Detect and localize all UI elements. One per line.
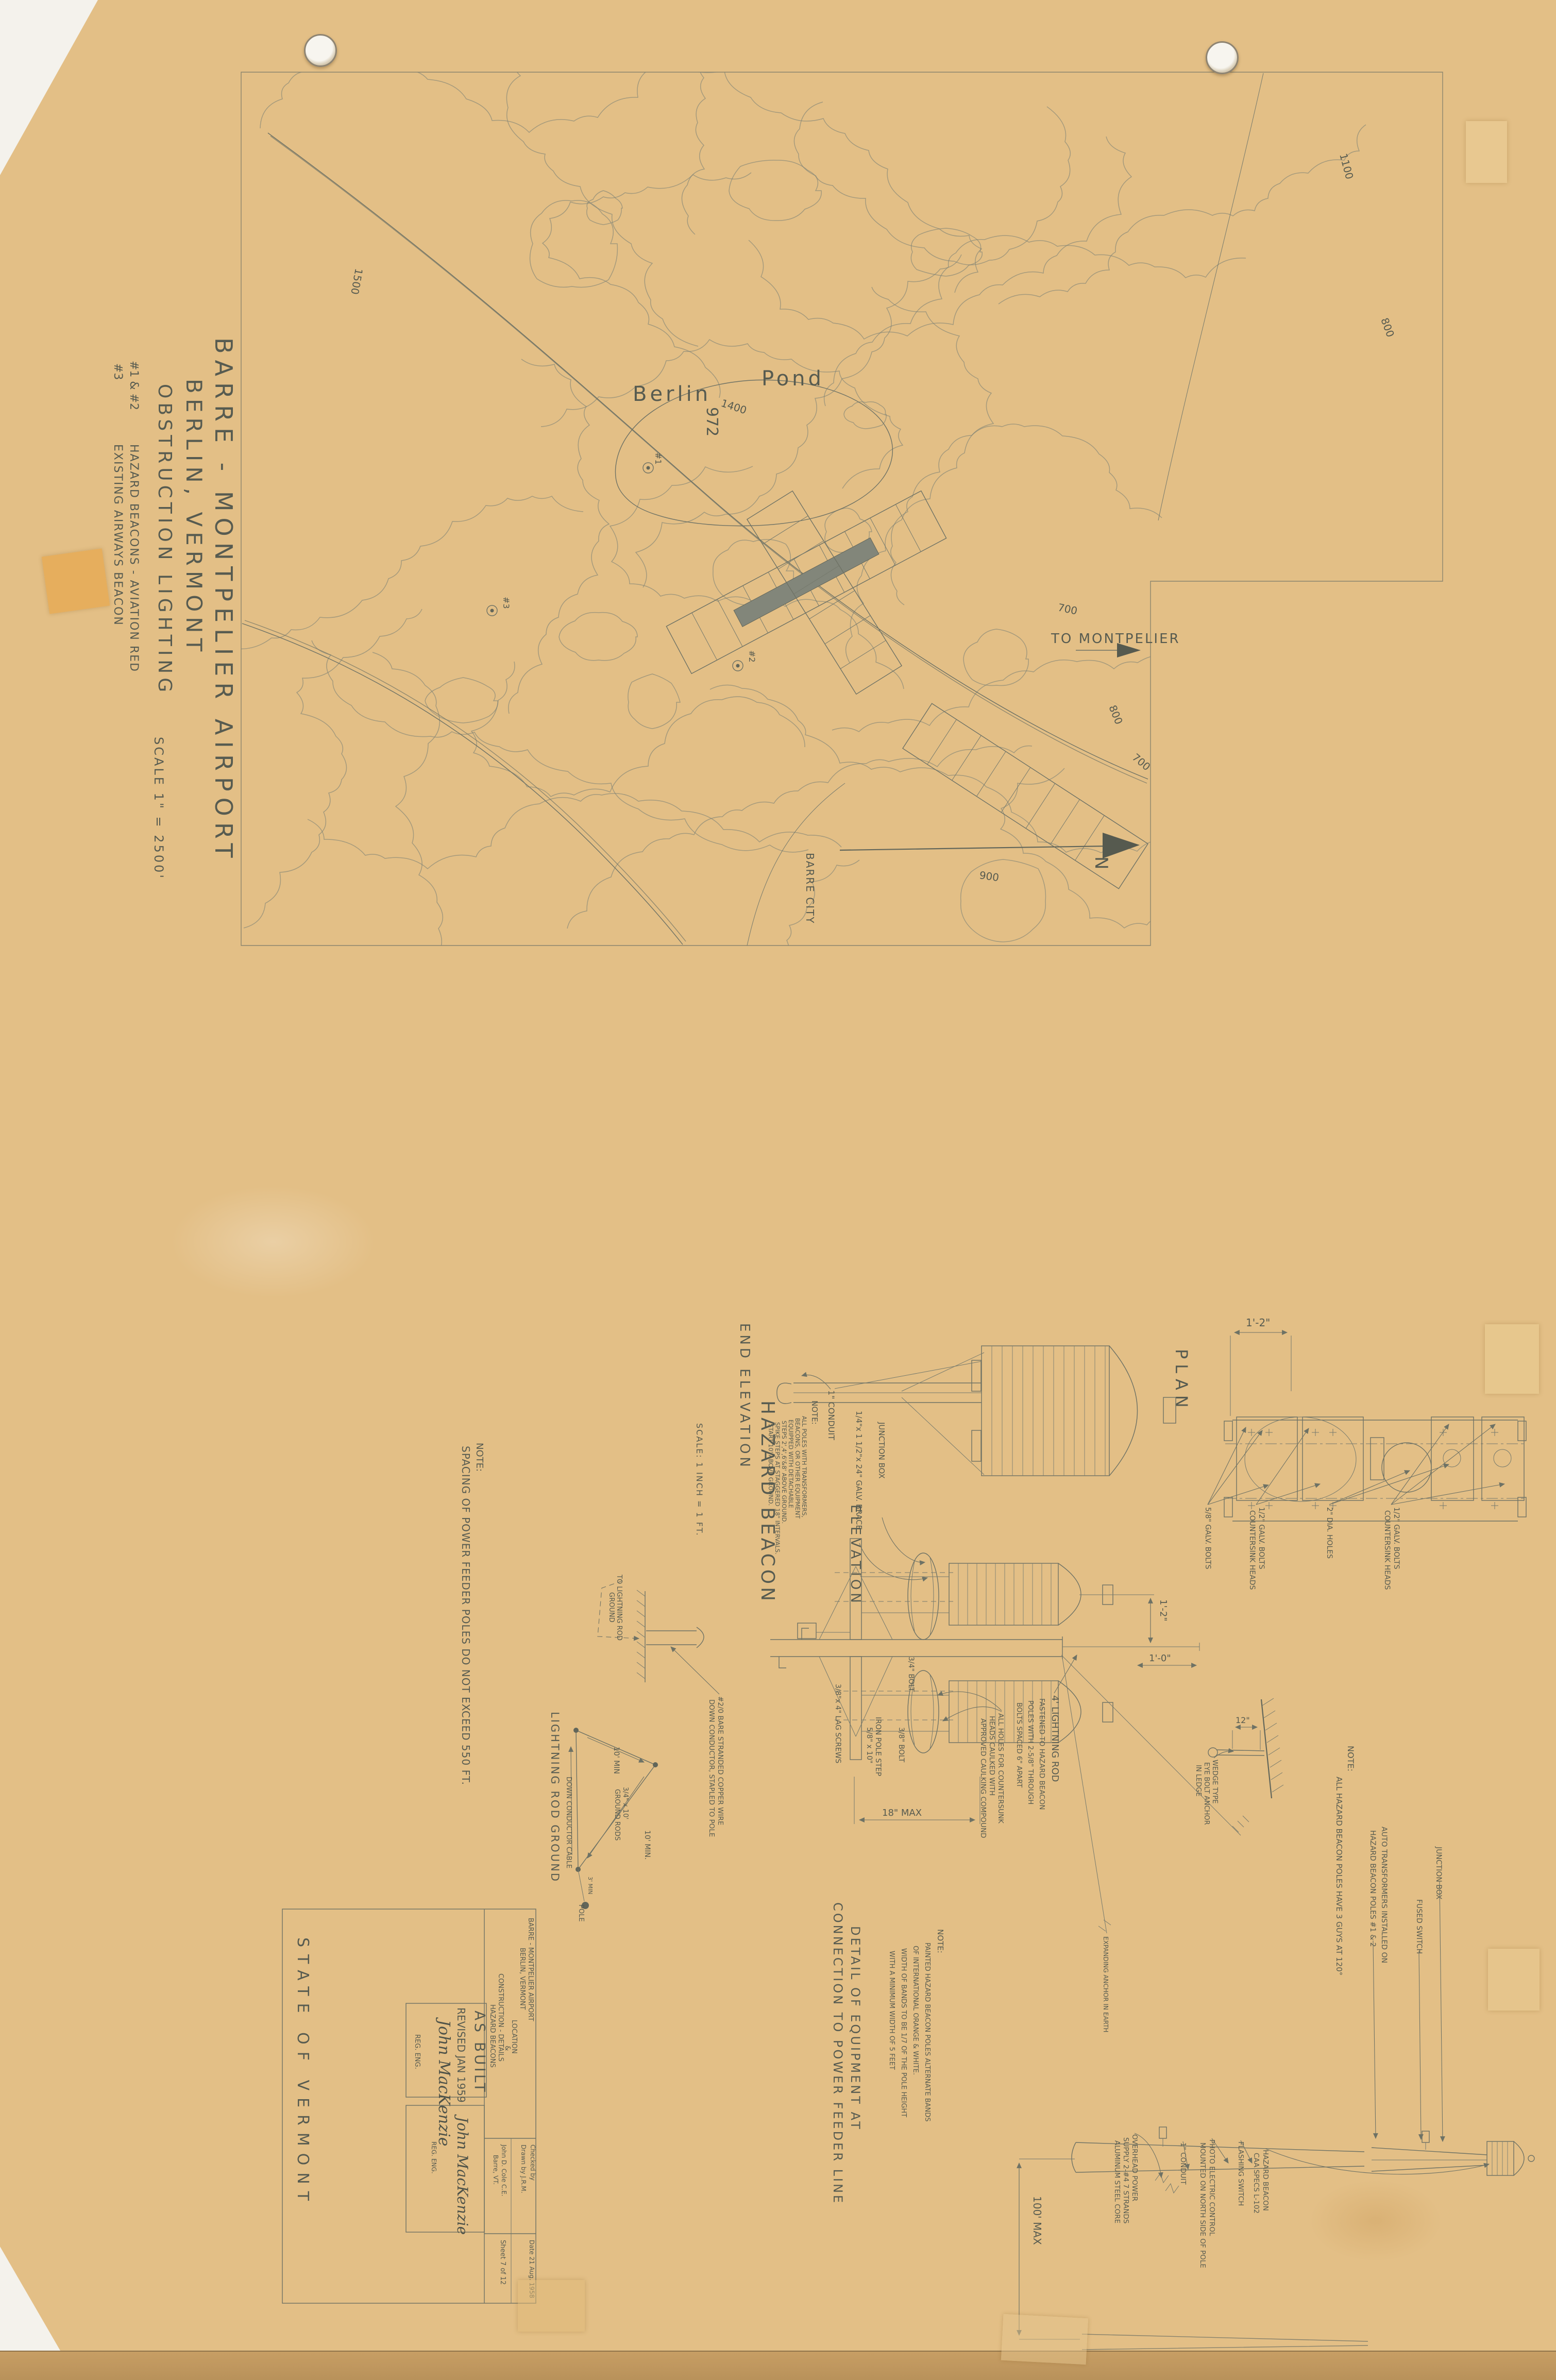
stamp-reg-eng: REG. ENG. <box>413 2034 421 2069</box>
note-line: SPACING OF POWER FEEDER POLES DO NOT EXC… <box>460 1446 472 1785</box>
contour-label: 800 <box>1106 703 1125 726</box>
sheet-bottom-edge <box>0 2351 1556 2380</box>
plan-callout-4: 1/2" GALV. BOLTS <box>1392 1507 1400 1569</box>
note-line: STEPS 2',4',6'&8' ABOVE GROUND. <box>781 1421 788 1524</box>
legend-symbol-3: #3 <box>111 363 124 380</box>
callout-galv-brace: 1/4"x 1 1/2"x 24" GALV. BRACE <box>854 1411 864 1530</box>
as-built-stamp: AS BUILT REVISED JAN 1959 John MacKenzie… <box>406 2003 488 2147</box>
legend-airways-beacon: EXISTING AIRWAYS BEACON <box>111 444 124 626</box>
tape-right-low <box>1488 1949 1540 2011</box>
wedge-anchor-detail <box>1208 1698 1283 1798</box>
power-dim-100max: 100' MAX <box>1031 2196 1043 2245</box>
runway-strips <box>666 491 1148 889</box>
tb-state: STATE OF VERMONT <box>294 1937 312 2208</box>
callout-junction-box-2: JUNCTION BOX <box>1434 1846 1443 1900</box>
contour-label: 800 <box>1378 316 1397 339</box>
lr-ground-rods-size: 3/4" x 10' <box>621 1787 629 1819</box>
punch-hole-left <box>304 34 337 67</box>
contour-line <box>543 173 751 398</box>
beacon-ribs <box>992 1346 1105 1476</box>
contour-line <box>506 0 698 346</box>
note-steps: NOTE: ALL POLES WITH TRANSFORMERS, BEACO… <box>767 1400 819 1555</box>
callout-lag-screws: 3/8"x 4" LAG SCREWS <box>834 1684 842 1763</box>
lr-cable: DOWN CONDUCTOR CABLE <box>565 1777 572 1868</box>
tape-bottom-left <box>518 2280 585 2332</box>
plan-callout-1: 5/8" GALV. BOLTS <box>1204 1507 1212 1569</box>
callout-lightning-rod-3: POLES WITH 2-5/8" THROUGH <box>1026 1700 1035 1804</box>
callout-to-ground-2: GROUND <box>607 1592 615 1623</box>
stamp-signature: John MacKenzie <box>435 2017 453 2147</box>
lr-ground-rods: GROUND RODS <box>613 1789 621 1841</box>
end-elevation-drawing <box>777 1346 1176 1476</box>
legend-hazard-beacons: HAZARD BEACONS - AVIATION RED <box>127 444 140 672</box>
contour-line <box>373 652 482 1097</box>
crease-highlight <box>170 1185 376 1298</box>
callout-to-ground-1: TO LIGHTNING ROD <box>615 1574 623 1641</box>
contour-line <box>776 860 953 1150</box>
contour-line <box>587 191 622 225</box>
tb-construction: CONSTRUCTION - DETAILS <box>497 1973 504 2062</box>
note-line: START 10' ABOVE GROUND. <box>767 1424 774 1506</box>
dim-1-0: 1'-0" <box>1149 1653 1171 1664</box>
contour-line <box>961 859 1046 942</box>
callout-down-conductor-2: DOWN CONDUCTOR, STAPLED TO POLE <box>707 1699 716 1837</box>
tb-city: BERLIN, VERMONT <box>518 1948 526 2010</box>
callout-lightning-rod-4: BOLTS SPACED 6" APART <box>1015 1702 1023 1788</box>
callout-flashing-switch: FLASHING SWITCH <box>1237 2141 1245 2206</box>
dim-18max: 18" MAX <box>882 1808 922 1818</box>
callout-junction-box: JUNCTION BOX <box>877 1422 886 1479</box>
plan-leaders <box>1208 1424 1504 1505</box>
tb-hazard-beacons: HAZARD BEACONS <box>488 2004 496 2068</box>
contour-label: 1500 <box>348 267 365 295</box>
tape-top-right <box>1466 121 1507 183</box>
lr-pole: POLE <box>577 1904 585 1922</box>
note-line: SPIKE STEPS AT STAGGERED 18" INTERVALS. <box>774 1422 781 1555</box>
callout-lightning-rod-2: FASTENED TO HAZARD BEACON <box>1038 1698 1046 1810</box>
contour-group <box>149 0 1366 1150</box>
power-feeder-detail <box>1019 2127 1534 2350</box>
map-panel: Berlin Pond 972 TO MONTPELIER BARRE CITY… <box>149 0 1443 1150</box>
contour-line <box>832 589 1340 732</box>
callout-conduit-2: 1" CONDUIT <box>1179 2142 1187 2185</box>
note-line: EQUIPPED WITH DETACHABLE <box>787 1420 794 1508</box>
note-line: AUTO TRANSFORMERS INSTALLED ON <box>1380 1827 1388 1963</box>
callout-photo-2: MOUNTED ON NORTH SIDE OF POLE <box>1198 2142 1207 2268</box>
dim-1-2: 1'-2" <box>1158 1599 1169 1622</box>
contour-label: 700 <box>1130 751 1153 773</box>
note-head: NOTE: <box>474 1443 485 1472</box>
signature-2-reg: REG. ENG. <box>430 2141 437 2174</box>
plan-callout-3: 2" DIA. HOLES <box>1325 1507 1333 1559</box>
note-transformers: AUTO TRANSFORMERS INSTALLED ON HAZARD BE… <box>1368 1827 1388 2138</box>
callout-bolt-38: 3/8" BOLT <box>897 1727 905 1763</box>
callout-lightning-rod: 4' LIGHTNING ROD <box>1050 1695 1060 1782</box>
punch-hole-right <box>1206 41 1239 74</box>
callout-photo-1: PHOTO ELECTRIC CONTROL <box>1208 2139 1216 2236</box>
contour-line <box>794 102 1070 265</box>
map-roads <box>242 73 1263 946</box>
callout-supply-1: OVERHEAD POWER <box>1130 2134 1139 2201</box>
note-line: ALL POLES WITH TRANSFORMERS, <box>801 1416 808 1517</box>
callout-iron-step-size: 5/8" x 10" <box>865 1727 873 1763</box>
legend-symbol-12: #1 & #2 <box>127 361 140 410</box>
contour-label: 900 <box>978 869 1000 884</box>
contour-line <box>749 137 1131 339</box>
map-label-to-montpelier: TO MONTPELIER <box>1051 631 1180 647</box>
callout-iron-step: IRON POLE STEP <box>874 1717 882 1776</box>
note-paint: NOTE: PAINTED HAZARD BEACON POLES ALTERN… <box>888 1929 945 2122</box>
signature-2: John MacKenzie <box>454 2114 471 2235</box>
contour-line <box>582 56 982 293</box>
tb-firm-city: Barre, VT. <box>492 2155 499 2185</box>
callout-supply-2: SUPPLY 2-#4 7 STRANDS <box>1122 2137 1130 2223</box>
callout-caulk-3: APPROVED CAULKING COMPOUND <box>979 1718 987 1838</box>
wedge-dim: 12" <box>1236 1715 1250 1725</box>
stain <box>1309 2180 1443 2262</box>
note-line: WITH A MINIMUM WIDTH OF 5 FEET <box>888 1951 895 2070</box>
contour-line <box>636 255 961 587</box>
callout-bolt-34: 3/4" BOLT <box>907 1657 915 1692</box>
note-line: PAINTED HAZARD BEACON POLES ALTERNATE BA… <box>923 1943 931 2122</box>
detail-title-lr-ground: LIGHTNING ROD GROUND <box>549 1712 561 1883</box>
note-head: NOTE: <box>1346 1746 1356 1771</box>
tb-drawn-by: Drawn by J.R.M. <box>520 2145 527 2193</box>
callout-caa-specs: CAA SPECS L-102 <box>1252 2153 1260 2214</box>
map-label-barre-city: BARRE CITY <box>804 853 816 924</box>
plan-drawing <box>1224 1332 1526 1521</box>
tape-bottom-middle <box>1001 2314 1088 2365</box>
contour-line <box>308 794 841 869</box>
map-label-pond: Pond <box>762 367 824 391</box>
stamp-as-built: AS BUILT <box>471 2011 488 2095</box>
contour-line <box>244 609 422 928</box>
contour-line <box>471 662 805 797</box>
lr-dim-3min: 3' MIN <box>587 1877 594 1894</box>
contour-line <box>312 640 808 852</box>
beacon-number: #1 <box>653 452 663 465</box>
map-scale: SCALE 1" = 2500' <box>151 737 166 880</box>
map-label-north: N <box>1091 856 1111 869</box>
callout-caulk-2: HEADS CAULKED WITH <box>988 1716 996 1796</box>
scanned-drawing-page: Berlin Pond 972 TO MONTPELIER BARRE CITY… <box>0 0 1556 2380</box>
tape-left <box>42 548 110 614</box>
callout-conduit: 1" CONDUIT <box>826 1390 836 1440</box>
contour-line <box>541 340 903 488</box>
stamp-revised: REVISED JAN 1959 <box>455 2007 467 2103</box>
tb-sheet-number: Sheet 7 of 12 <box>499 2240 506 2285</box>
map-label-berlin: Berlin <box>633 382 711 406</box>
contour-line <box>846 287 993 663</box>
callout-supply-3: ALUMINUM STEEL CORE <box>1113 2140 1121 2223</box>
contour-line <box>963 629 1028 686</box>
contour-label: 1100 <box>1337 152 1356 180</box>
note-line: OF INTERNATIONAL ORANGE & WHITE. <box>911 1946 919 2075</box>
view-title-end-elevation: END ELEVATION <box>737 1323 752 1470</box>
sheet-title-city: BERLIN, VERMONT <box>181 379 207 656</box>
contour-line <box>891 424 1162 605</box>
tb-airport: BARRE - MONTPELIER AIRPORT <box>527 1918 534 2021</box>
wedge-label-3: IN LEDGE <box>1194 1765 1202 1796</box>
wedge-label-1: WEDGE TYPE <box>1211 1760 1219 1803</box>
callout-anchor-earth: EXPANDING ANCHOR IN EARTH <box>1102 1936 1109 2032</box>
contour-line <box>559 613 637 661</box>
callout-fused-switch: FUSED SWITCH <box>1415 1899 1423 1954</box>
detail-title-power-1: DETAIL OF EQUIPMENT AT <box>848 1926 862 2131</box>
contour-line <box>824 235 1246 406</box>
detail-title-power-2: CONNECTION TO POWER FEEDER LINE <box>831 1902 845 2205</box>
wedge-label-2: EYE BOLT ANCHOR <box>1203 1762 1210 1825</box>
note-line: ALL HAZARD BEACON POLES HAVE 3 GUYS AT 1… <box>1334 1777 1344 1976</box>
plan-callout-2: 1/2" GALV. BOLTS <box>1257 1507 1265 1569</box>
side-titles: BARRE - MONTPELIER AIRPORT BERLIN, VERMO… <box>111 337 238 880</box>
note-guys: NOTE: ALL HAZARD BEACON POLES HAVE 3 GUY… <box>1334 1746 1356 1976</box>
contour-line <box>999 125 1366 304</box>
tb-checked-by: Checked by <box>529 2145 536 2181</box>
plan-callout-4b: COUNTERSINK HEADS <box>1383 1510 1391 1590</box>
contour-line <box>567 746 1032 929</box>
bolt-marks <box>1248 1429 1498 1509</box>
tape-right-mid <box>1485 1324 1539 1394</box>
note-line: HAZARD BEACON POLES #1 & 2 <box>1368 1830 1377 1947</box>
lr-dim-10min: 10' MIN <box>612 1747 620 1774</box>
sheet-title-subject: OBSTRUCTION LIGHTING <box>154 384 175 696</box>
view-scale: SCALE: 1 INCH = 1 FT. <box>695 1423 704 1537</box>
note-line: BEACONS, OR OTHER EQUIPMENT <box>794 1418 801 1519</box>
note-line: WIDTH OF BANDS TO BE 1/7 OF THE POLE HEI… <box>900 1948 907 2117</box>
beacon-number: #2 <box>747 650 757 663</box>
plan-dim: 1'-2" <box>1246 1316 1270 1329</box>
contour-line <box>1001 768 1348 929</box>
lr-dim-10min-2: 10' MIN. <box>643 1830 651 1860</box>
north-arrow <box>840 833 1140 858</box>
contour-line <box>729 160 821 221</box>
contour-line <box>628 674 680 729</box>
plan-callout-2b: COUNTERSINK HEADS <box>1248 1510 1256 1590</box>
note-head: NOTE: <box>810 1400 819 1425</box>
callout-down-conductor-1: #2/0 BARE STRANDED COPPER WIRE <box>716 1696 724 1825</box>
title-block: STATE OF VERMONT BARRE - MONTPELIER AIRP… <box>282 1909 536 2303</box>
sheet-title-airport: BARRE - MONTPELIER AIRPORT <box>210 337 238 864</box>
tb-firm: John D. Cole C.E. <box>500 2144 508 2197</box>
callout-hazard-beacon: HAZARD BEACON <box>1261 2150 1270 2211</box>
beacon-number: #3 <box>501 597 511 609</box>
map-label-pond-elev: 972 <box>703 407 721 436</box>
contour-label: 700 <box>1057 601 1078 617</box>
view-title-plan: PLAN <box>1172 1349 1191 1413</box>
callout-caulk-1: ALL HOLES FOR COUNTERSUNK <box>996 1713 1005 1824</box>
note-head: NOTE: <box>936 1929 945 1953</box>
note-feeder: NOTE: SPACING OF POWER FEEDER POLES DO N… <box>460 1443 485 1785</box>
contour-label: 1400 <box>719 397 748 417</box>
